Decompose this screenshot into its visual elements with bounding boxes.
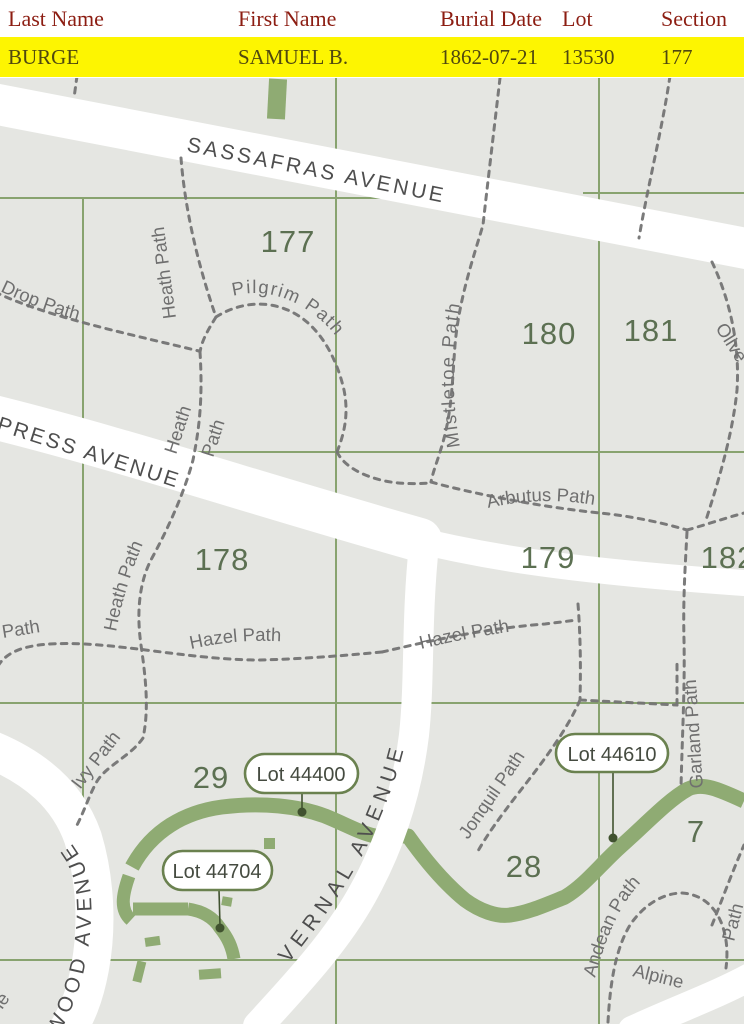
section-label-7: 7 [687, 814, 705, 849]
column-header-first-name: First Name [238, 6, 336, 32]
section-label-178: 178 [195, 542, 250, 577]
column-header-last-name: Last Name [8, 6, 104, 32]
lot-44610-marker [609, 834, 618, 843]
cell-last-name: BURGE [8, 45, 79, 70]
lot-44400-marker [298, 808, 307, 817]
cell-lot: 13530 [562, 45, 615, 70]
cell-first-name: SAMUEL B. [238, 45, 348, 70]
section-label-29: 29 [193, 760, 229, 795]
section-label-180: 180 [522, 316, 577, 351]
column-header-section: Section [661, 6, 727, 32]
section-label-28: 28 [506, 849, 542, 884]
lot-44400-callout[interactable]: Lot 44400 [245, 754, 358, 793]
section-label-181: 181 [624, 313, 679, 348]
lot-44610-callout[interactable]: Lot 44610 [556, 734, 668, 772]
column-header-burial-date: Burial Date [440, 6, 542, 32]
section-label-179: 179 [521, 540, 576, 575]
burial-record-table: Last Name First Name Burial Date Lot Sec… [0, 0, 744, 78]
lot-44704-callout[interactable]: Lot 44704 [163, 851, 272, 890]
lot-44704-label: Lot 44704 [173, 861, 262, 883]
table-header-row: Last Name First Name Burial Date Lot Sec… [0, 0, 744, 37]
burial-search-screen: 177 178 179 180 181 182 29 28 7 SASSAFRA… [0, 0, 744, 1024]
table-row-selected[interactable]: BURGE SAMUEL B. 1862-07-21 13530 177 [0, 37, 744, 77]
section-label-182: 182 [701, 540, 744, 575]
cell-burial-date: 1862-07-21 [440, 45, 538, 70]
column-header-lot: Lot [562, 6, 593, 32]
cell-section: 177 [661, 45, 693, 70]
lot-44400-label: Lot 44400 [257, 764, 346, 786]
cemetery-map[interactable]: 177 178 179 180 181 182 29 28 7 SASSAFRA… [0, 0, 744, 1024]
lot-44610-label: Lot 44610 [568, 744, 657, 766]
lot-44704-marker [216, 924, 225, 933]
section-label-177: 177 [261, 224, 316, 259]
